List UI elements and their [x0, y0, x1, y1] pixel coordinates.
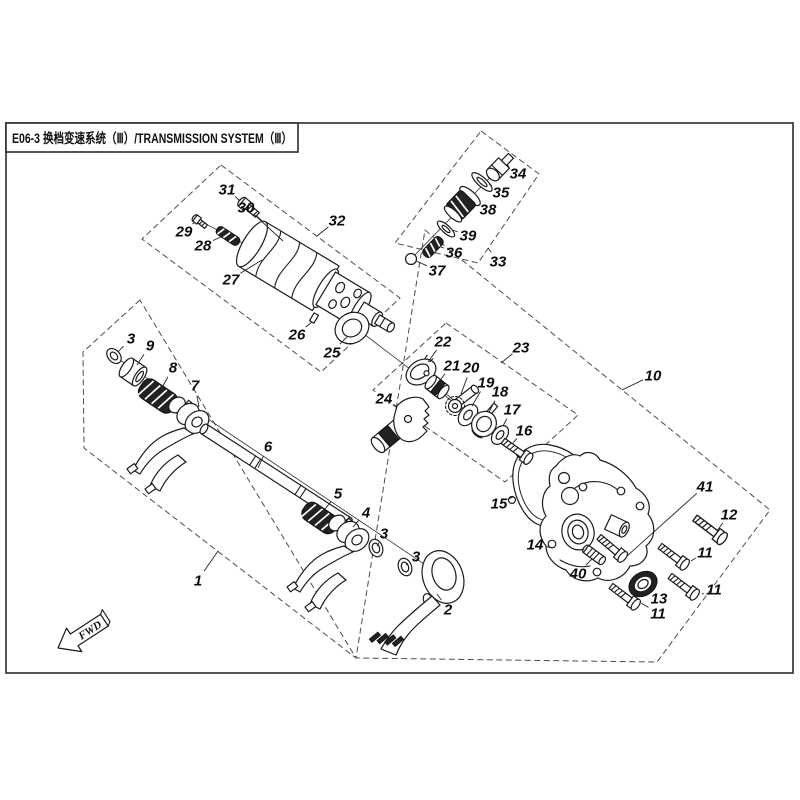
svg-text:30: 30	[238, 200, 255, 217]
svg-text:7: 7	[191, 378, 200, 395]
callout-23: 23	[501, 340, 530, 364]
svg-text:38: 38	[480, 202, 497, 219]
svg-text:41: 41	[696, 479, 714, 496]
callout-15: 15	[491, 496, 513, 513]
svg-text:2: 2	[443, 602, 453, 619]
svg-text:10: 10	[645, 368, 662, 385]
svg-text:35: 35	[493, 185, 510, 202]
callout-5: 5	[325, 486, 343, 510]
callout-35: 35	[489, 184, 510, 202]
part-11-bolt	[666, 571, 701, 602]
svg-text:3: 3	[127, 331, 136, 348]
svg-text:25: 25	[323, 345, 341, 362]
part-11-bolt	[656, 541, 691, 572]
callout-31: 31	[219, 182, 240, 202]
svg-text:31: 31	[219, 182, 236, 199]
callout-11: 11	[702, 582, 722, 599]
callout-3: 3	[377, 526, 389, 547]
svg-text:21: 21	[443, 358, 461, 375]
callout-39: 39	[452, 228, 477, 245]
svg-text:17: 17	[504, 402, 521, 419]
drawing-frame	[6, 123, 793, 673]
svg-text:24: 24	[375, 391, 393, 408]
svg-text:4: 4	[361, 505, 371, 522]
fwd-arrow: FWD	[51, 606, 115, 661]
svg-text:3: 3	[380, 526, 389, 543]
svg-text:5: 5	[334, 486, 343, 503]
part-4-shift-fork	[287, 512, 373, 612]
svg-text:20: 20	[462, 360, 480, 377]
svg-text:6: 6	[264, 439, 273, 456]
callout-21: 21	[441, 358, 460, 380]
callout-16: 16	[513, 423, 533, 444]
part-7-shift-fork	[127, 394, 213, 494]
callout-29: 29	[175, 222, 195, 241]
svg-text:27: 27	[222, 272, 240, 289]
callout-36: 36	[441, 245, 463, 262]
svg-text:37: 37	[429, 263, 446, 280]
svg-text:32: 32	[329, 213, 346, 230]
svg-text:14: 14	[527, 537, 544, 554]
part-37-ball	[406, 254, 417, 265]
callout-4: 4	[353, 505, 371, 528]
svg-text:13: 13	[651, 591, 668, 608]
svg-text:19: 19	[478, 375, 495, 392]
svg-text:34: 34	[510, 166, 527, 183]
svg-text:26: 26	[288, 327, 306, 344]
svg-text:29: 29	[175, 224, 193, 241]
part-26-pin	[310, 313, 319, 323]
part-29-screw	[191, 214, 208, 230]
page-title: E06-3 换档变速系统（Ⅲ）/TRANSMISSION SYSTEM（Ⅲ）	[12, 130, 292, 146]
callout-3: 3	[118, 331, 136, 353]
svg-text:23: 23	[512, 340, 530, 357]
svg-text:40: 40	[569, 566, 587, 583]
svg-text:16: 16	[516, 423, 533, 440]
callout-13: 13	[648, 589, 668, 608]
svg-text:8: 8	[169, 360, 178, 377]
svg-text:1: 1	[194, 573, 202, 590]
part-28-spring	[215, 225, 242, 247]
callout-33: 33	[488, 248, 507, 271]
svg-text:28: 28	[194, 238, 212, 255]
callout-8: 8	[163, 360, 178, 387]
callout-32: 32	[317, 213, 346, 237]
callout-24: 24	[375, 391, 396, 408]
callout-12: 12	[717, 507, 738, 532]
callout-26: 26	[288, 322, 312, 344]
callout-10: 10	[622, 368, 662, 391]
callout-25: 25	[323, 337, 347, 362]
svg-text:15: 15	[491, 496, 508, 513]
callout-11: 11	[691, 545, 713, 562]
svg-text:12: 12	[721, 507, 738, 524]
svg-text:9: 9	[146, 338, 155, 355]
callout-28: 28	[194, 236, 223, 255]
part-27-shift-drum	[231, 217, 407, 351]
svg-text:3: 3	[412, 549, 421, 566]
svg-text:36: 36	[446, 245, 463, 262]
exploded-parts-diagram: E06-3 换档变速系统（Ⅲ）/TRANSMISSION SYSTEM（Ⅲ）	[0, 0, 800, 800]
parts-catalog-page: E06-3 换档变速系统（Ⅲ）/TRANSMISSION SYSTEM（Ⅲ）	[0, 0, 800, 800]
svg-text:11: 11	[650, 606, 666, 623]
svg-text:39: 39	[460, 228, 477, 245]
part-38-plug	[442, 184, 483, 225]
svg-text:22: 22	[434, 334, 452, 351]
svg-text:33: 33	[490, 254, 507, 271]
svg-text:11: 11	[697, 545, 713, 562]
svg-text:11: 11	[706, 582, 722, 599]
callout-9: 9	[137, 338, 155, 366]
callout-34: 34	[507, 165, 527, 183]
callout-37: 37	[416, 261, 446, 280]
callout-1: 1	[194, 551, 218, 590]
